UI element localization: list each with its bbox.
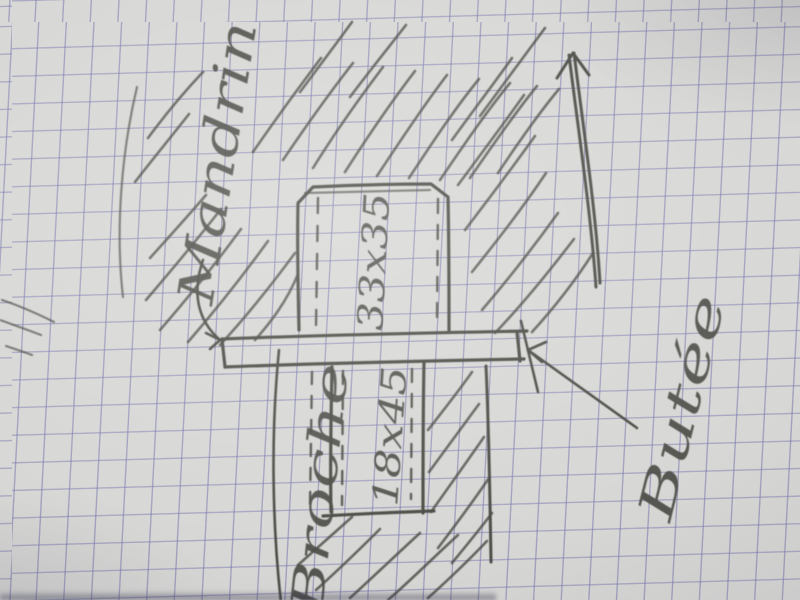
pencil-sketch: Mandrin 33x35 18x45 Broche Butée: [0, 0, 800, 600]
dimension-lower-section: 18x45: [366, 365, 416, 507]
label-mandrin: Mandrin: [166, 17, 268, 309]
stray-pencil-scribbles: [0, 300, 54, 355]
photo-of-hand-sketch: Mandrin 33x35 18x45 Broche Butée: [0, 0, 800, 600]
left-margin-bracket-line: [120, 87, 137, 297]
lower-right-hatching: [428, 366, 492, 563]
label-butee: Butée: [627, 289, 737, 527]
flange-outline: [222, 331, 527, 367]
broche-side-line: [274, 350, 284, 600]
chuck-hatching-right: [452, 58, 593, 333]
butee-leader-arrow: [521, 321, 637, 428]
label-broche: Broche: [280, 361, 359, 600]
dimension-upper-section: 33x35: [351, 192, 398, 332]
